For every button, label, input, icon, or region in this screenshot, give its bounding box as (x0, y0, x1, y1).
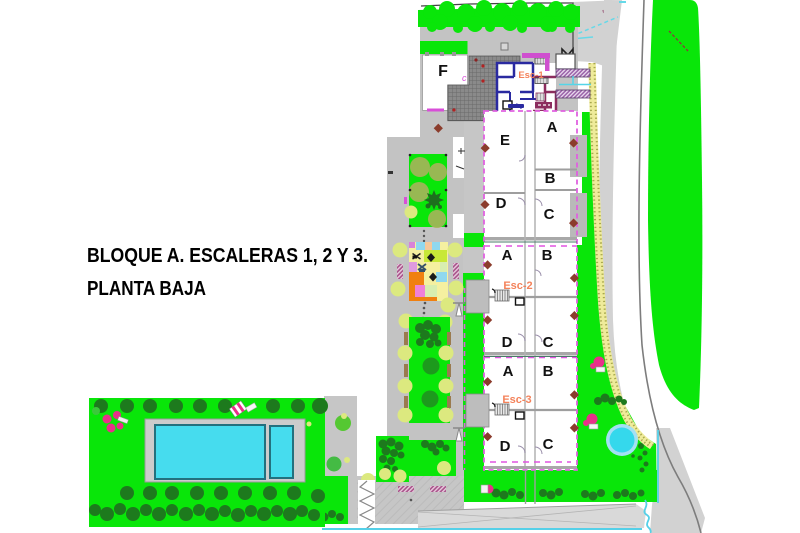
svg-text:c: c (462, 73, 467, 83)
svg-text:C: C (543, 436, 554, 453)
svg-text:D: D (500, 438, 511, 455)
svg-text:B: B (545, 170, 556, 187)
svg-text:F: F (438, 63, 448, 80)
svg-text:Esc-3: Esc-3 (502, 394, 531, 406)
svg-text:E: E (500, 132, 510, 149)
svg-text:B: B (542, 247, 553, 264)
svg-text:Esc-2: Esc-2 (503, 280, 532, 292)
svg-text:C: C (544, 206, 555, 223)
svg-text:C: C (543, 334, 554, 351)
svg-text:A: A (503, 363, 514, 380)
svg-text:Esc-1: Esc-1 (518, 70, 544, 81)
svg-text:BLOQUE A. ESCALERAS 1, 2 Y 3.: BLOQUE A. ESCALERAS 1, 2 Y 3. (87, 245, 368, 267)
svg-text:A: A (502, 247, 513, 264)
svg-text:PLANTA BAJA: PLANTA BAJA (87, 278, 206, 300)
svg-text:D: D (496, 195, 507, 212)
svg-text:D: D (502, 334, 513, 351)
svg-text:A: A (547, 119, 558, 136)
svg-text:B: B (543, 363, 554, 380)
